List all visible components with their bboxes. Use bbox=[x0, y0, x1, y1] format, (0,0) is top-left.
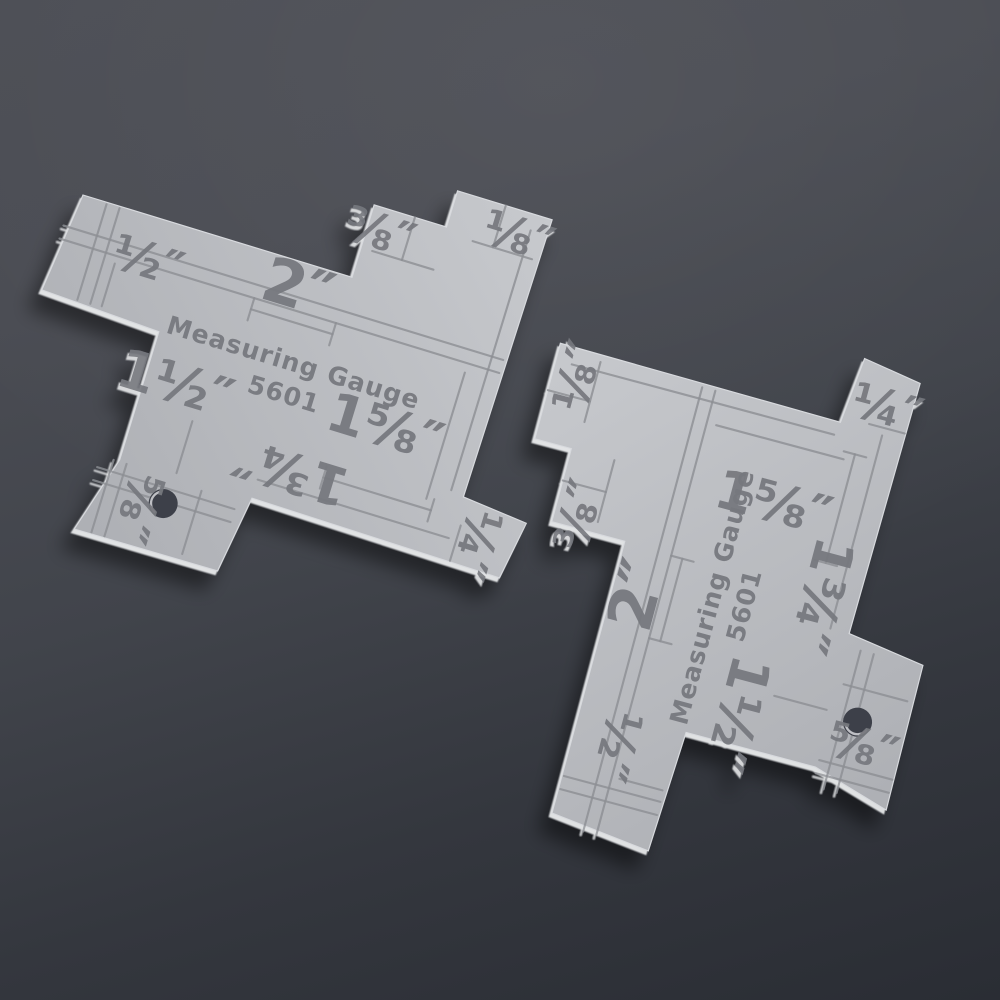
measuring-gauge-bottom-right: ½″ 2″ ⅜″ ⅛″ 1½″ 1⅝″ 1¾″ ⅝″ ¼″ Measuring … bbox=[438, 281, 998, 908]
photo-background: ½″ 2″ ⅜″ ⅛″ 1½″ 1⅝″ 1¾″ ⅝″ ¼″ Measuring … bbox=[0, 0, 1000, 1000]
label-three-eighths: ⅜″ bbox=[543, 473, 616, 557]
product-photo: ½″ 2″ ⅜″ ⅛″ 1½″ 1⅝″ 1¾″ ⅝″ ¼″ Measuring … bbox=[0, 0, 1000, 1000]
measuring-gauge-top-left: ½″ 2″ ⅜″ ⅛″ 1½″ 1⅝″ 1¾″ ⅝″ ¼″ Measuring … bbox=[0, 81, 614, 655]
gauge-1-labels: ½″ 2″ ⅜″ ⅛″ 1½″ 1⅝″ 1¾″ ⅝″ ¼″ Measuring … bbox=[33, 98, 600, 648]
